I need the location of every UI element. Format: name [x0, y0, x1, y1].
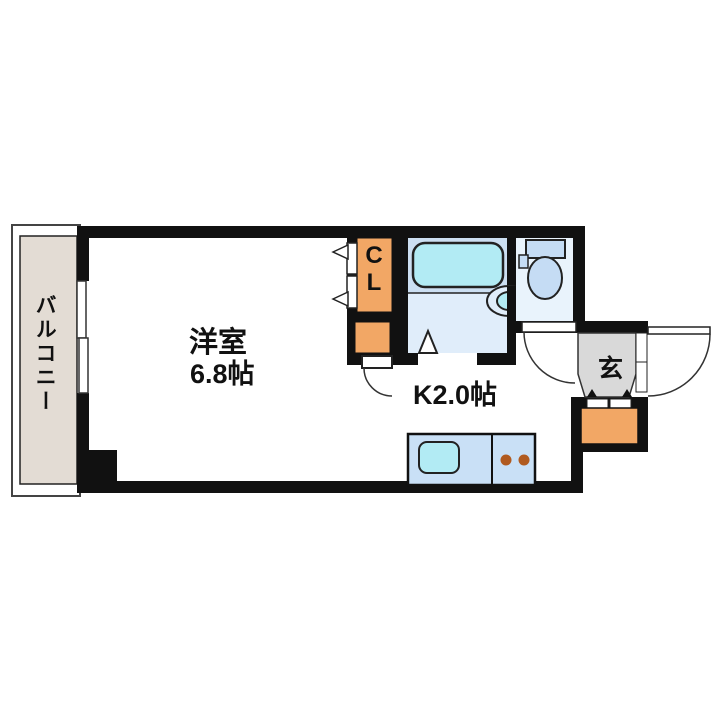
wall-corner-pillar	[77, 450, 117, 493]
front-door-leaf	[648, 327, 710, 334]
front-door-swing-arc	[648, 334, 710, 396]
storage-area	[355, 322, 390, 353]
toilet-door-swing-arc	[524, 332, 575, 383]
shoe-cabinet-top	[587, 399, 608, 408]
balcony-label: バルコニー	[33, 294, 56, 414]
wall-right-lower	[571, 452, 583, 483]
washbasin-wall-cover	[507, 286, 516, 317]
entrance-label: 玄	[598, 356, 623, 384]
living-room-label: 洋室	[189, 328, 247, 360]
bathtub-icon	[413, 243, 503, 287]
bathroom-door-opening	[418, 353, 477, 365]
toilet-door-leaf	[522, 322, 576, 332]
wall-left-lower	[77, 393, 89, 451]
shoe-cabinet	[581, 408, 638, 444]
living-room-size-label: 6.8帖	[190, 360, 255, 390]
window-icon	[77, 281, 88, 393]
kitchen-label: K2.0帖	[413, 381, 497, 411]
wall-top	[77, 226, 585, 238]
sink-icon	[419, 442, 459, 473]
room-door-swing-arc	[364, 368, 392, 396]
room-door-leaf	[362, 356, 392, 368]
wall-left-upper	[77, 238, 89, 281]
closet-door-icon	[333, 243, 357, 308]
shoe-cabinet-top	[610, 399, 631, 408]
wall-right-upper	[573, 238, 585, 333]
closet-label: CL	[365, 243, 383, 297]
floorplan-canvas: バルコニー 洋室 6.8帖 K2.0帖 CL 玄	[0, 0, 720, 720]
